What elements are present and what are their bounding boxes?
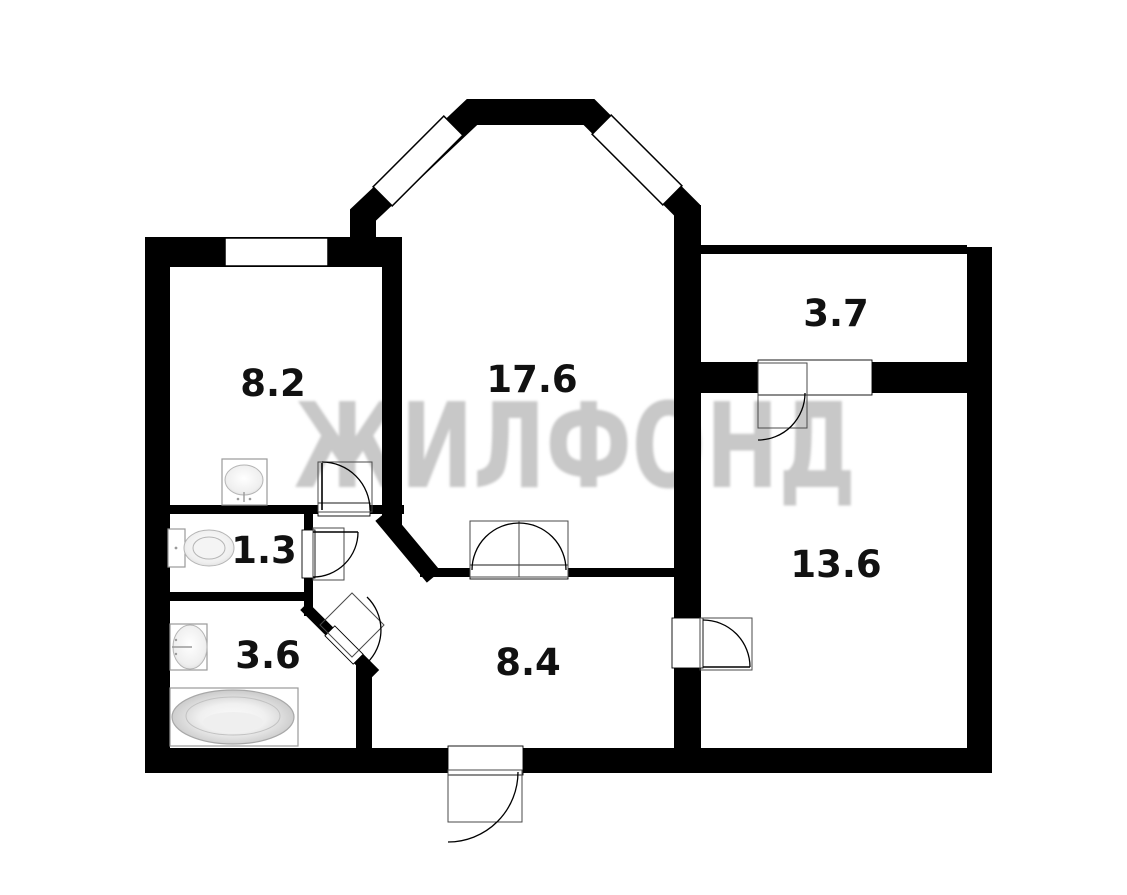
room-label-bedroom: 13.6 bbox=[790, 543, 881, 586]
room-label-storage: 3.7 bbox=[803, 292, 869, 335]
floorplan-canvas: ЖИЛФОНД bbox=[0, 0, 1127, 895]
room-label-wc: 1.3 bbox=[231, 529, 297, 572]
floorplan-drawing: ЖИЛФОНД bbox=[0, 0, 1127, 895]
wall-exterior-left bbox=[145, 237, 170, 772]
washbasin bbox=[170, 624, 207, 670]
toilet bbox=[168, 529, 234, 567]
room-label-bathroom: 3.6 bbox=[235, 634, 301, 677]
kitchen-sink bbox=[222, 459, 267, 505]
wall-wc-bathroom bbox=[170, 592, 313, 601]
wall-storage-top bbox=[701, 245, 967, 254]
room-label-living: 17.6 bbox=[486, 358, 577, 401]
wall-exterior-bottom bbox=[145, 748, 992, 773]
wall-kitchen-living bbox=[382, 237, 402, 528]
kitchen-window bbox=[225, 238, 328, 266]
bathtub bbox=[170, 688, 298, 746]
wall-bathroom-hall bbox=[356, 664, 372, 754]
room-label-hallway: 8.4 bbox=[495, 641, 561, 684]
room-label-kitchen: 8.2 bbox=[240, 362, 306, 405]
wall-exterior-right bbox=[967, 247, 992, 772]
wall-hall-bedroom bbox=[674, 205, 701, 754]
